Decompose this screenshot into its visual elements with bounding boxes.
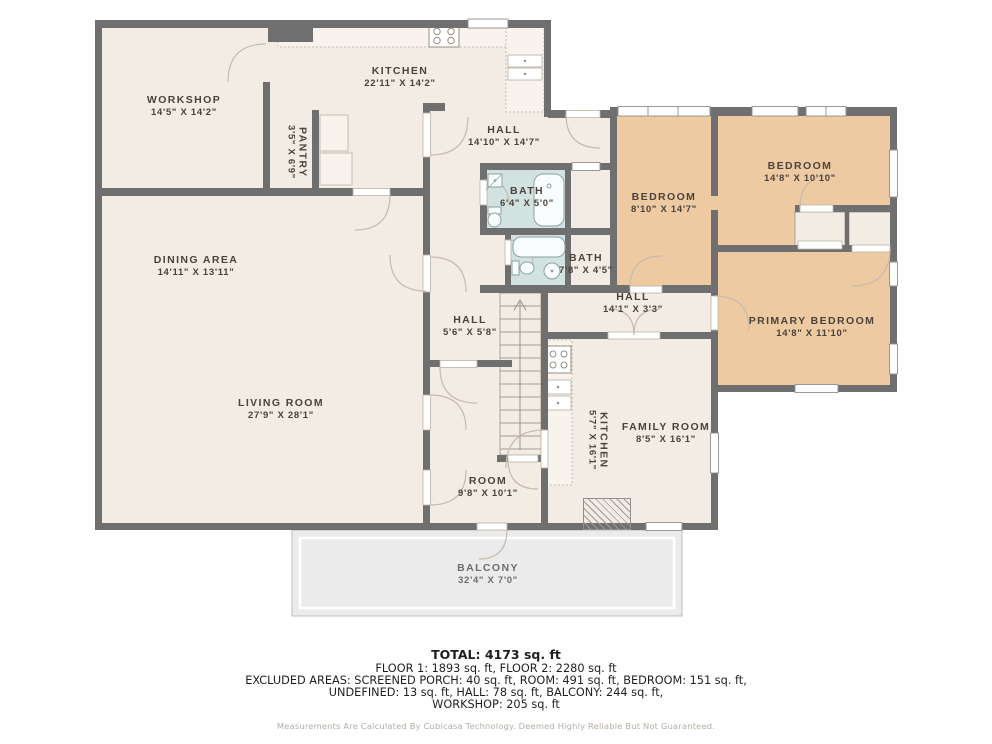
- room-label-bath-small: BATH 6'4" X 5'0": [500, 185, 554, 209]
- screened-porch-hatch: [583, 498, 631, 530]
- room-label-living-room: LIVING ROOM 27'9" X 28'1": [238, 397, 324, 421]
- area-summary: TOTAL: 4173 sq. ft FLOOR 1: 1893 sq. ft,…: [0, 647, 992, 731]
- room-label-hall-narrow: HALL 14'1" X 3'3": [603, 291, 663, 315]
- room-label-bedroom-right: BEDROOM 14'8" X 10'10": [764, 160, 836, 184]
- room-label-bedroom-left: BEDROOM 8'10" X 14'7": [631, 191, 697, 215]
- room-label-primary-bedroom: PRIMARY BEDROOM 14'8" X 11'10": [749, 315, 876, 339]
- room-label-pantry: PANTRY 3'5" X 6'9": [286, 125, 309, 179]
- excluded-areas-line3: WORKSHOP: 205 sq. ft: [0, 699, 992, 711]
- room-label-bath-lower: BATH 7'8" X 4'5": [559, 252, 613, 276]
- room-label-balcony: BALCONY 32'4" X 7'0": [457, 562, 519, 586]
- excluded-areas-line2: UNDEFINED: 13 sq. ft, HALL: 78 sq. ft, B…: [0, 687, 992, 699]
- room-label-workshop: WORKSHOP 14'5" X 14'2": [147, 94, 221, 118]
- floor-plan-page: WORKSHOP 14'5" X 14'2" KITCHEN 22'11" X …: [0, 0, 992, 744]
- room-label-hall-upper: HALL 14'10" X 14'7": [468, 124, 540, 148]
- room-label-hall-small: HALL 5'6" X 5'8": [443, 314, 497, 338]
- room-label-kitchen-lower: KITCHEN 5'7" X 16'1": [587, 410, 610, 470]
- room-label-kitchen: KITCHEN 22'11" X 14'2": [364, 65, 435, 89]
- total-area-text: TOTAL: 4173 sq. ft: [0, 647, 992, 662]
- room-label-room: ROOM 9'8" X 10'1": [458, 475, 518, 499]
- disclaimer-text: Measurements Are Calculated By Cubicasa …: [0, 721, 992, 731]
- room-label-dining-area: DINING AREA 14'11" X 13'11": [154, 254, 238, 278]
- room-label-family-room: FAMILY ROOM 8'5" X 16'1": [622, 421, 710, 445]
